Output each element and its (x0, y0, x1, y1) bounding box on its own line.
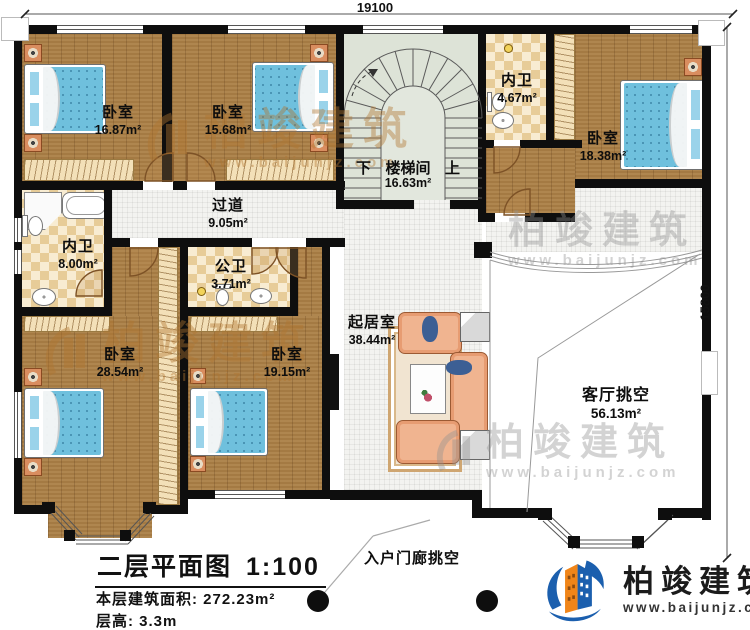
room-label-bedroom-r: 卧室 18.38m² (558, 130, 648, 164)
plan-title-text: 二层平面图 (97, 547, 232, 583)
floor-height-label: 层高: (96, 613, 134, 630)
wall (285, 490, 330, 499)
room-label-bedroom-tl: 卧室 16.87m² (68, 104, 168, 138)
wall (478, 213, 495, 222)
lower-floor-outline (1, 17, 29, 41)
stair-down-label: 下 (356, 157, 371, 178)
ceiling-lamp-symbol (504, 44, 513, 53)
plan-scale: 1:100 (246, 553, 320, 582)
window (363, 25, 443, 34)
room-label-bath-l: 内卫 8.00m² (43, 238, 113, 272)
window (14, 392, 22, 458)
stair-name-label: 楼梯间 (385, 157, 430, 178)
nightstand-symbol (310, 134, 328, 152)
dimension-right: 15800 (698, 268, 713, 338)
nightstand-symbol (24, 134, 42, 152)
bathtub-symbol (62, 192, 110, 219)
window (228, 25, 305, 34)
plan-title: 二层平面图 1:100 (95, 547, 326, 588)
room-label-stairwell: 下 楼梯间 上 (356, 157, 460, 178)
wall (180, 307, 298, 316)
tv-symbol (330, 354, 339, 410)
floor-plan: 柏竣建筑www.baijunjz.com 柏竣建筑www.baijunjz.co… (0, 0, 750, 630)
nightstand-symbol (190, 368, 206, 384)
nightstand-symbol (24, 44, 42, 62)
window (14, 218, 22, 242)
sink-symbol (32, 288, 56, 306)
floor-area-row: 本层建筑面积: 272.23m² (96, 588, 275, 609)
tile-band-right (575, 188, 702, 252)
nightstand-symbol (24, 458, 42, 476)
coffee-table-symbol (410, 364, 446, 414)
wall (575, 179, 702, 188)
room-label-bedroom-bm: 卧室 19.15m² (247, 346, 327, 380)
window (57, 25, 143, 34)
column-dot (307, 590, 329, 612)
wall (336, 200, 414, 209)
bedroom-bl-bay-floor (48, 505, 152, 538)
nightstand-symbol (190, 456, 206, 472)
nightstand-symbol (684, 58, 702, 76)
lower-floor-outline (698, 20, 725, 46)
brand-name: 柏竣建筑 (623, 565, 750, 599)
room-area-stairwell: 16.63m² (356, 176, 460, 192)
wall (144, 505, 188, 514)
wall (472, 508, 542, 518)
wall (14, 307, 112, 316)
tile-band-mid (486, 222, 575, 252)
column-dot (476, 590, 498, 612)
wall (14, 505, 52, 514)
end-table-symbol (460, 430, 490, 460)
watermark-name: 柏竣建筑 (486, 424, 679, 462)
bedroom-bm-entry-floor (298, 247, 322, 316)
wall (330, 490, 482, 500)
window (630, 25, 692, 34)
void-boundary (490, 250, 702, 512)
room-label-living: 起居室 38.44m² (330, 314, 414, 348)
wardrobe-symbol (24, 316, 110, 332)
wall (450, 200, 486, 209)
bay-window (538, 508, 673, 549)
wall (180, 238, 188, 505)
wall (112, 238, 130, 247)
wall (662, 508, 702, 518)
toilet-symbol (22, 212, 44, 240)
dimension-top: 19100 (340, 0, 410, 15)
wall (158, 238, 252, 247)
floor-height-row: 层高: 3.3m (96, 610, 177, 630)
nightstand-symbol (310, 44, 328, 62)
floor-area-value: 272.23m² (203, 591, 275, 608)
wall (290, 247, 298, 307)
wall (22, 181, 143, 190)
window (215, 490, 285, 499)
person-figure (446, 360, 472, 375)
wall (173, 181, 187, 190)
stair-up-label: 上 (445, 157, 460, 178)
nightstand-symbol (24, 368, 42, 386)
floor-height-value: 3.3m (139, 613, 177, 630)
room-label-bedroom-tm: 卧室 15.68m² (178, 104, 278, 138)
bed-symbol (190, 388, 268, 456)
sink-symbol (492, 112, 514, 129)
room-label-corridor: 过道 9.05m² (193, 197, 263, 231)
window (14, 250, 22, 274)
person-figure (422, 316, 438, 342)
watermark-url: www.baijunjz.com (486, 464, 679, 481)
wall (478, 34, 486, 213)
sofa-symbol (396, 420, 460, 464)
leader-line (373, 520, 430, 536)
wardrobe-symbol (554, 34, 575, 140)
brand-logo: 柏竣建筑 www.baijunjz.com (534, 556, 750, 624)
wall (180, 490, 215, 499)
wall (486, 140, 494, 148)
wall (306, 238, 345, 247)
wall (215, 181, 345, 190)
wall-niche (701, 351, 718, 395)
wardrobe-symbol (24, 159, 134, 181)
watermark-url: www.baijunjz.com (508, 252, 701, 269)
brand-website: www.baijunjz.com (623, 600, 750, 615)
brand-logo-icon (534, 556, 614, 624)
wardrobe-symbol (158, 247, 178, 505)
stair-opening-floor (414, 200, 450, 209)
end-table-symbol (460, 312, 490, 342)
wardrobe-symbol (226, 159, 334, 181)
room-label-porch-void: 入户门廊挑空 (352, 550, 472, 569)
column (474, 242, 492, 258)
bed-symbol (24, 388, 104, 458)
wardrobe-symbol (190, 316, 278, 332)
room-label-bath-m: 公卫 3.71m² (201, 258, 261, 292)
floor-area-label: 本层建筑面积: (96, 591, 198, 608)
wall (525, 213, 575, 222)
room-label-bedroom-bl: 卧室 28.54m² (80, 346, 160, 380)
room-label-living-void: 客厅挑空 56.13m² (568, 386, 664, 423)
room-label-bath-tr: 内卫 4.67m² (486, 72, 548, 106)
